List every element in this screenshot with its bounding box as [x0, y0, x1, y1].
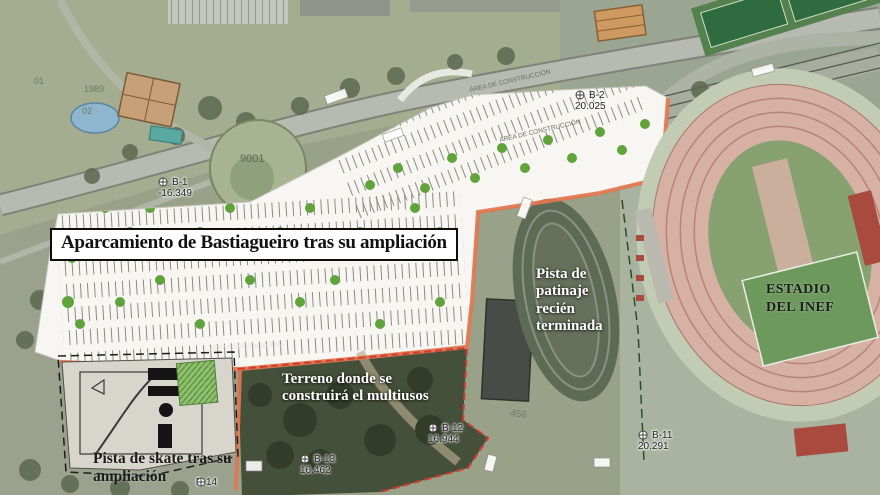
cadastral-01: 01 — [34, 76, 44, 86]
skate-park-label: Pista de skate tras su ampliación — [93, 450, 258, 486]
skating-rink-label: Pista de patinaje recién terminada — [536, 266, 622, 336]
marker-value: 20.291 — [638, 441, 669, 452]
main-title: Aparcamiento de Bastiagueiro tras su amp… — [50, 228, 458, 261]
marker-value: 16.462 — [300, 465, 331, 476]
cadastral-02: 02 — [82, 106, 92, 116]
aerial-plan-map: ÁREA DE CONSTRUCCIÓN ÁREA DE CONSTRUCCIÓ… — [0, 0, 880, 495]
construction-shed — [594, 5, 646, 41]
cadastral-9001: 9001 — [240, 153, 264, 165]
survey-marker-b14: B-14 — [196, 477, 220, 488]
cadastral-1989: 1989 — [84, 84, 104, 94]
pond — [71, 103, 119, 133]
survey-crosshair-icon — [300, 454, 310, 464]
survey-marker-b11: B-11 20.291 — [638, 430, 672, 452]
survey-marker-b12: B-12 16.944 — [428, 423, 463, 445]
survey-crosshair-icon — [575, 90, 585, 100]
marker-value: 20.025 — [575, 101, 606, 112]
survey-marker-b1: B-1 -16.349 — [158, 177, 192, 199]
survey-crosshair-icon — [158, 177, 168, 187]
survey-crosshair-icon — [428, 423, 438, 433]
survey-crosshair-icon — [638, 430, 648, 440]
survey-marker-b13: B-13 16.462 — [300, 454, 335, 476]
survey-marker-b2: B-2 20.025 — [575, 90, 606, 112]
stadium-label: ESTADIO DEL INEF — [766, 281, 834, 316]
marker-value: 16.944 — [428, 434, 459, 445]
marker-value: -16.349 — [158, 188, 192, 199]
terrain-label: Terreno donde se construirá el multiusos — [282, 371, 460, 406]
survey-crosshair-icon — [196, 477, 206, 487]
